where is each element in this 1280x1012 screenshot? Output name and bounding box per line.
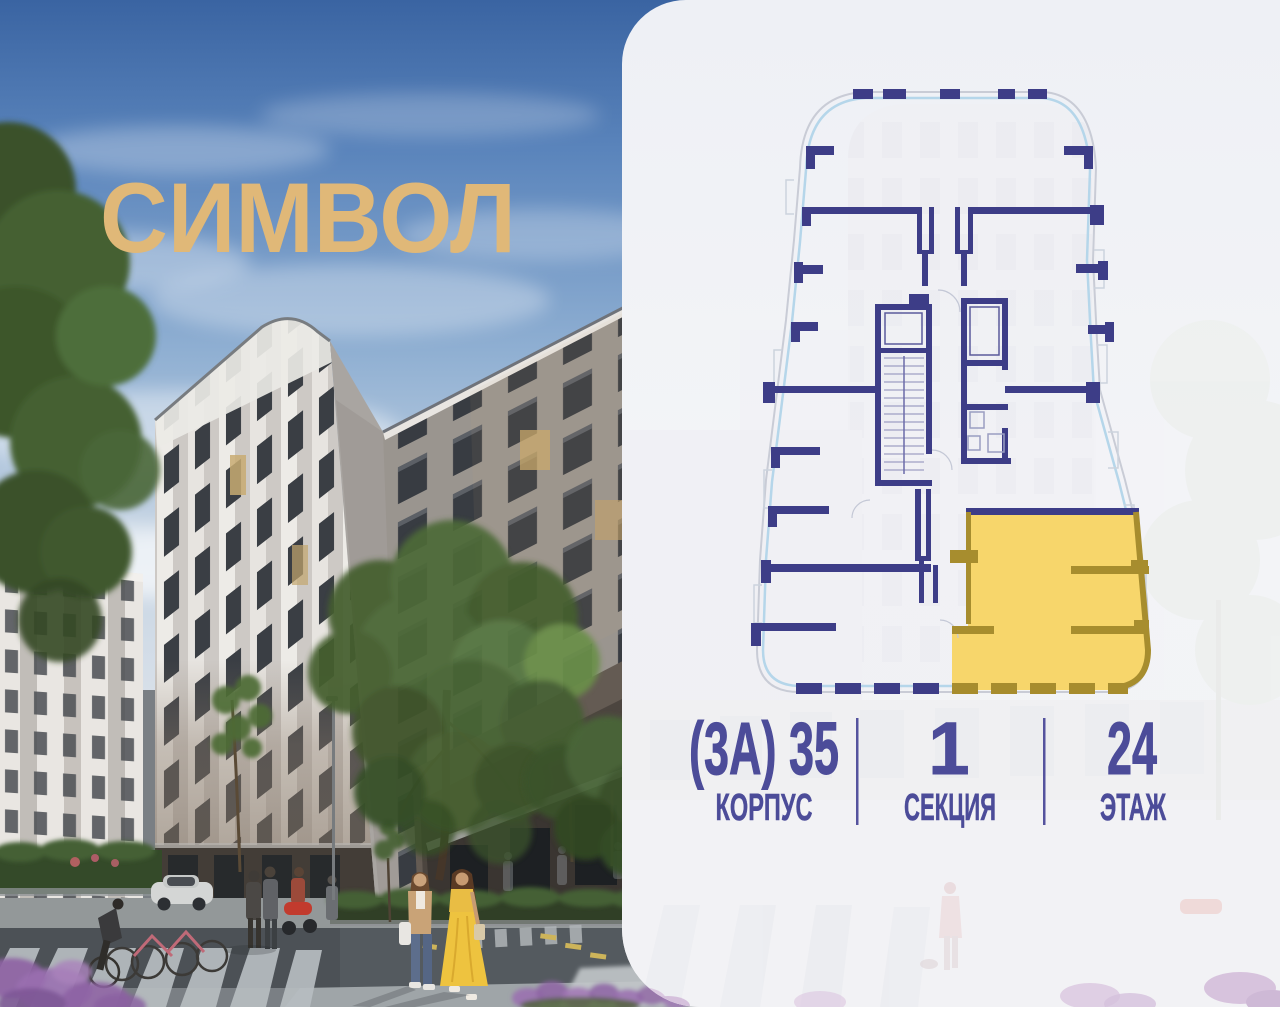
svg-text:1: 1 [928, 707, 969, 790]
svg-text:ЭТАЖ: ЭТАЖ [1100, 787, 1166, 829]
svg-text:СИМВОЛ: СИМВОЛ [100, 162, 516, 273]
svg-text:(3А) 35: (3А) 35 [689, 707, 839, 790]
svg-text:КОРПУС: КОРПУС [716, 787, 813, 829]
svg-text:24: 24 [1107, 707, 1157, 790]
svg-text:СЕКЦИЯ: СЕКЦИЯ [904, 787, 996, 829]
